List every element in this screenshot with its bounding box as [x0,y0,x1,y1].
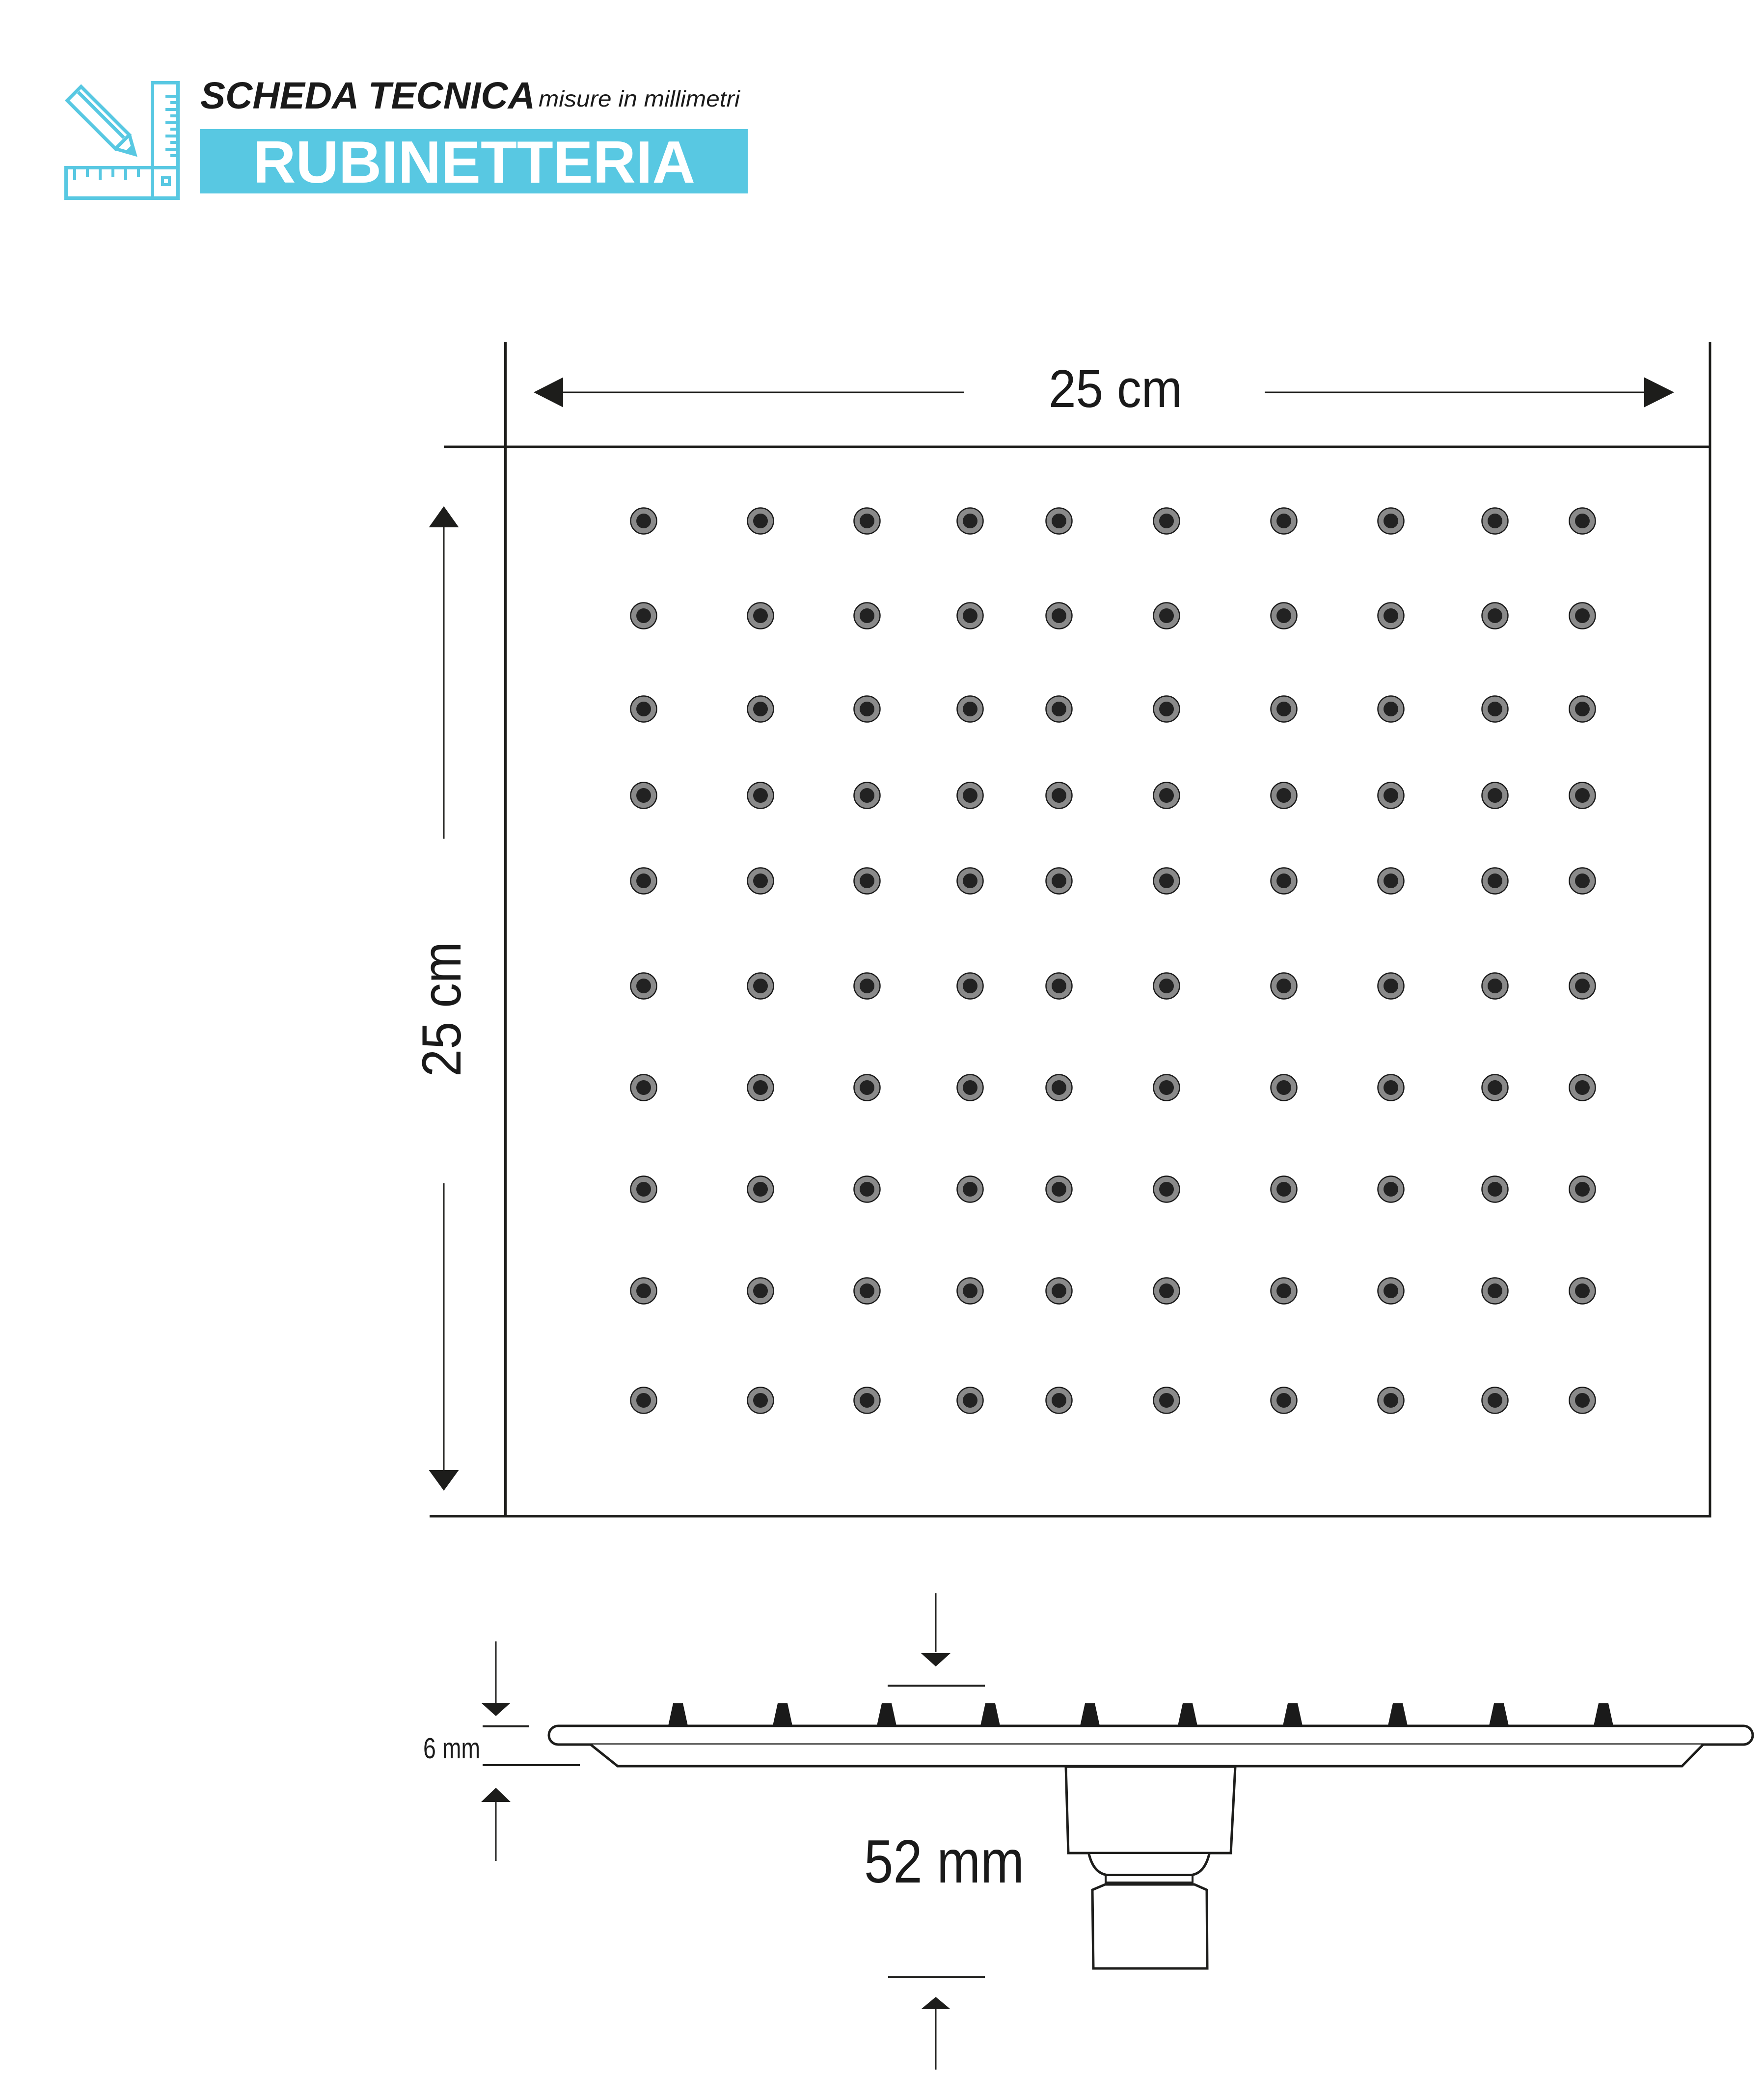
svg-text:25 cm: 25 cm [1049,359,1182,419]
svg-text:52 mm: 52 mm [864,1828,1024,1896]
svg-text:RUBINETTERIA: RUBINETTERIA [253,129,695,195]
svg-text:SCHEDA TECNICA: SCHEDA TECNICA [200,75,535,117]
svg-text:6 mm: 6 mm [423,1732,480,1765]
svg-text:25 cm: 25 cm [411,942,472,1077]
svg-text:misure in millimetri: misure in millimetri [539,86,741,111]
